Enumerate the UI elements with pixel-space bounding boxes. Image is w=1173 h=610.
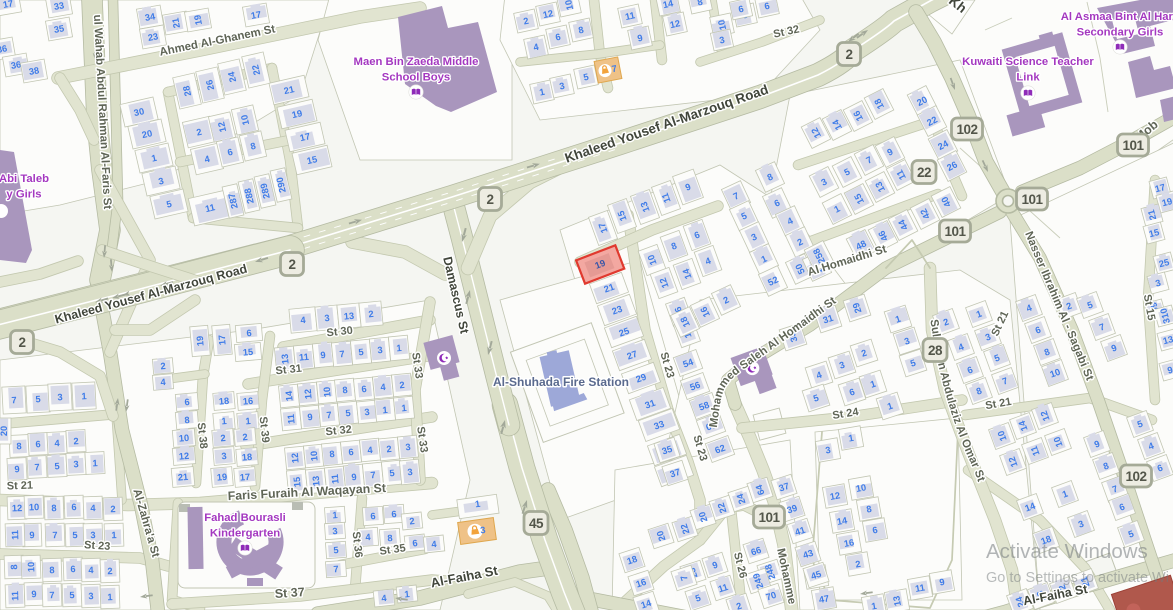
- svg-text:3: 3: [364, 407, 370, 417]
- svg-text:1: 1: [404, 589, 410, 599]
- svg-text:101: 101: [944, 224, 966, 239]
- svg-text:19: 19: [195, 335, 206, 346]
- svg-text:9: 9: [320, 350, 326, 360]
- svg-text:5: 5: [333, 545, 339, 555]
- svg-text:9: 9: [14, 464, 20, 474]
- svg-text:2: 2: [368, 309, 374, 319]
- svg-text:2: 2: [845, 47, 852, 62]
- svg-text:2: 2: [386, 444, 392, 454]
- svg-text:102: 102: [1125, 469, 1146, 484]
- svg-text:12: 12: [12, 503, 23, 513]
- svg-text:8: 8: [329, 449, 335, 459]
- svg-text:3: 3: [332, 526, 338, 536]
- svg-text:Abi Taleb: Abi Taleb: [0, 173, 49, 185]
- svg-text:35: 35: [53, 23, 65, 35]
- svg-text:19: 19: [216, 472, 227, 483]
- svg-text:2: 2: [486, 192, 493, 207]
- svg-text:8: 8: [184, 415, 190, 425]
- svg-text:22: 22: [917, 165, 931, 180]
- svg-text:3: 3: [405, 442, 411, 452]
- svg-text:1: 1: [111, 530, 117, 540]
- svg-text:3: 3: [407, 467, 413, 477]
- svg-text:33: 33: [53, 0, 65, 12]
- svg-text:10: 10: [563, 0, 575, 11]
- svg-text:15: 15: [242, 347, 253, 358]
- svg-text:1: 1: [92, 458, 98, 468]
- svg-text:10: 10: [26, 562, 36, 573]
- svg-text:11: 11: [10, 591, 20, 601]
- svg-text:7: 7: [339, 349, 345, 359]
- svg-text:10: 10: [716, 19, 728, 31]
- svg-text:13: 13: [280, 353, 291, 364]
- svg-text:8: 8: [49, 565, 55, 575]
- svg-text:2: 2: [73, 436, 79, 446]
- svg-text:11: 11: [10, 530, 20, 540]
- svg-text:St 21: St 21: [7, 480, 34, 493]
- svg-text:3: 3: [73, 459, 79, 469]
- svg-text:13: 13: [343, 311, 354, 322]
- svg-text:102: 102: [956, 122, 977, 137]
- svg-text:18: 18: [241, 452, 252, 463]
- svg-text:1: 1: [245, 416, 251, 426]
- svg-text:Al-Shuhada Fire Station: Al-Shuhada Fire Station: [493, 375, 629, 389]
- svg-text:y Girls: y Girls: [6, 189, 41, 201]
- svg-text:1: 1: [107, 592, 113, 602]
- svg-text:6: 6: [246, 328, 252, 338]
- svg-text:10: 10: [855, 482, 867, 494]
- svg-text:Maen Bin Zaeda Middle: Maen Bin Zaeda Middle: [354, 56, 479, 68]
- svg-text:45: 45: [529, 516, 544, 531]
- svg-text:St 37: St 37: [274, 585, 305, 601]
- svg-text:Fahad Bourasli: Fahad Bourasli: [204, 512, 286, 524]
- svg-text:2: 2: [220, 433, 226, 443]
- svg-text:38: 38: [28, 65, 40, 77]
- svg-text:6: 6: [348, 447, 354, 457]
- svg-text:11: 11: [914, 582, 925, 594]
- svg-text:Kindergarten: Kindergarten: [210, 528, 280, 540]
- svg-text:12: 12: [303, 388, 314, 399]
- svg-text:7: 7: [370, 470, 376, 480]
- svg-text:3: 3: [324, 313, 330, 323]
- svg-text:2: 2: [18, 335, 25, 350]
- svg-text:Activate Windows: Activate Windows: [986, 540, 1148, 563]
- svg-text:101: 101: [1021, 192, 1043, 207]
- svg-text:17: 17: [250, 9, 262, 21]
- svg-text:11: 11: [624, 10, 636, 22]
- svg-text:2: 2: [409, 516, 415, 526]
- svg-text:10: 10: [178, 433, 189, 444]
- svg-text:11: 11: [286, 414, 297, 425]
- svg-text:8: 8: [342, 385, 348, 395]
- svg-text:2: 2: [399, 380, 405, 390]
- svg-text:7: 7: [49, 590, 55, 600]
- svg-text:2: 2: [242, 432, 248, 442]
- svg-text:6: 6: [412, 538, 418, 548]
- svg-text:9: 9: [31, 589, 37, 599]
- svg-text:6: 6: [71, 502, 77, 512]
- svg-text:10: 10: [29, 502, 40, 512]
- svg-text:2: 2: [110, 504, 116, 514]
- svg-text:17: 17: [217, 334, 228, 345]
- svg-text:5: 5: [35, 394, 41, 404]
- svg-text:17: 17: [2, 0, 14, 10]
- svg-text:7: 7: [326, 410, 332, 420]
- svg-text:18: 18: [218, 396, 229, 407]
- svg-text:10: 10: [309, 450, 320, 461]
- svg-text:12: 12: [669, 18, 681, 30]
- svg-text:5: 5: [54, 461, 60, 471]
- svg-text:7: 7: [11, 395, 17, 405]
- svg-text:6: 6: [35, 439, 41, 449]
- svg-text:6: 6: [184, 397, 190, 407]
- svg-text:3: 3: [57, 392, 63, 402]
- svg-text:28: 28: [928, 343, 943, 358]
- svg-text:14: 14: [284, 390, 295, 402]
- svg-text:21: 21: [177, 472, 188, 483]
- svg-text:Secondary Girls: Secondary Girls: [1077, 27, 1164, 39]
- svg-text:5: 5: [358, 347, 364, 357]
- svg-text:3: 3: [88, 591, 94, 601]
- svg-text:9: 9: [307, 412, 313, 422]
- svg-text:21: 21: [170, 17, 182, 29]
- svg-text:Kuwaiti Science Teacher: Kuwaiti Science Teacher: [962, 56, 1094, 68]
- svg-text:101: 101: [1122, 138, 1144, 153]
- svg-text:6: 6: [391, 509, 397, 519]
- svg-text:Go to Settings to activate Wi: Go to Settings to activate Wi: [986, 570, 1169, 586]
- svg-text:1: 1: [396, 343, 402, 353]
- svg-text:3: 3: [377, 345, 383, 355]
- svg-text:2: 2: [107, 566, 113, 576]
- svg-text:10: 10: [322, 386, 333, 397]
- svg-text:13: 13: [891, 595, 903, 607]
- svg-text:7: 7: [333, 564, 339, 574]
- svg-text:8: 8: [51, 503, 57, 513]
- svg-text:Link: Link: [1016, 72, 1040, 84]
- svg-text:Al Asmaa Bint Al Hare: Al Asmaa Bint Al Hare: [1061, 11, 1173, 23]
- svg-text:St 23: St 23: [84, 539, 111, 553]
- svg-text:2: 2: [288, 257, 295, 272]
- svg-text:23: 23: [147, 31, 159, 43]
- svg-text:1: 1: [81, 391, 87, 401]
- svg-text:1: 1: [401, 403, 407, 413]
- svg-text:101: 101: [758, 510, 780, 525]
- svg-text:16: 16: [843, 537, 855, 549]
- svg-text:8: 8: [16, 441, 22, 451]
- svg-text:8: 8: [387, 533, 393, 543]
- svg-text:School Boys: School Boys: [382, 72, 450, 84]
- svg-text:1: 1: [382, 405, 388, 415]
- svg-text:7: 7: [52, 530, 58, 540]
- svg-text:12: 12: [542, 8, 554, 20]
- svg-text:17: 17: [239, 472, 250, 483]
- svg-text:12: 12: [290, 452, 301, 463]
- svg-text:16: 16: [242, 396, 253, 407]
- svg-text:2: 2: [160, 361, 166, 371]
- svg-text:9: 9: [29, 530, 35, 540]
- svg-text:6: 6: [361, 384, 367, 394]
- svg-text:3: 3: [221, 451, 227, 461]
- svg-text:36: 36: [10, 59, 22, 71]
- svg-text:12: 12: [178, 451, 189, 462]
- svg-text:19: 19: [192, 14, 204, 26]
- svg-text:5: 5: [72, 530, 78, 540]
- svg-text:5: 5: [345, 408, 351, 418]
- svg-text:12: 12: [829, 490, 841, 502]
- svg-text:20: 20: [0, 426, 9, 436]
- svg-text:5: 5: [389, 468, 395, 478]
- svg-text:11: 11: [299, 352, 310, 363]
- svg-text:1: 1: [332, 510, 338, 520]
- svg-text:5: 5: [69, 590, 75, 600]
- svg-text:1: 1: [221, 416, 227, 426]
- svg-text:7: 7: [34, 462, 40, 472]
- svg-text:6: 6: [70, 564, 76, 574]
- svg-text:8: 8: [9, 564, 19, 570]
- svg-text:9: 9: [351, 472, 357, 482]
- svg-text:47: 47: [818, 593, 830, 605]
- svg-text:6: 6: [370, 511, 376, 521]
